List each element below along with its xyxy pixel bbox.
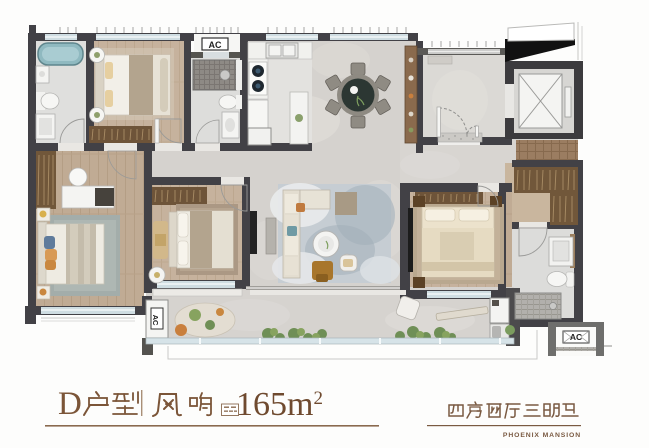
svg-text:165m2: 165m2 bbox=[236, 386, 323, 423]
svg-text:AC: AC bbox=[209, 40, 222, 50]
svg-text:PHOENIX MANSION: PHOENIX MANSION bbox=[503, 432, 581, 439]
svg-text:AC: AC bbox=[570, 332, 582, 342]
svg-text:D: D bbox=[58, 386, 82, 422]
svg-text:AC: AC bbox=[151, 315, 160, 326]
